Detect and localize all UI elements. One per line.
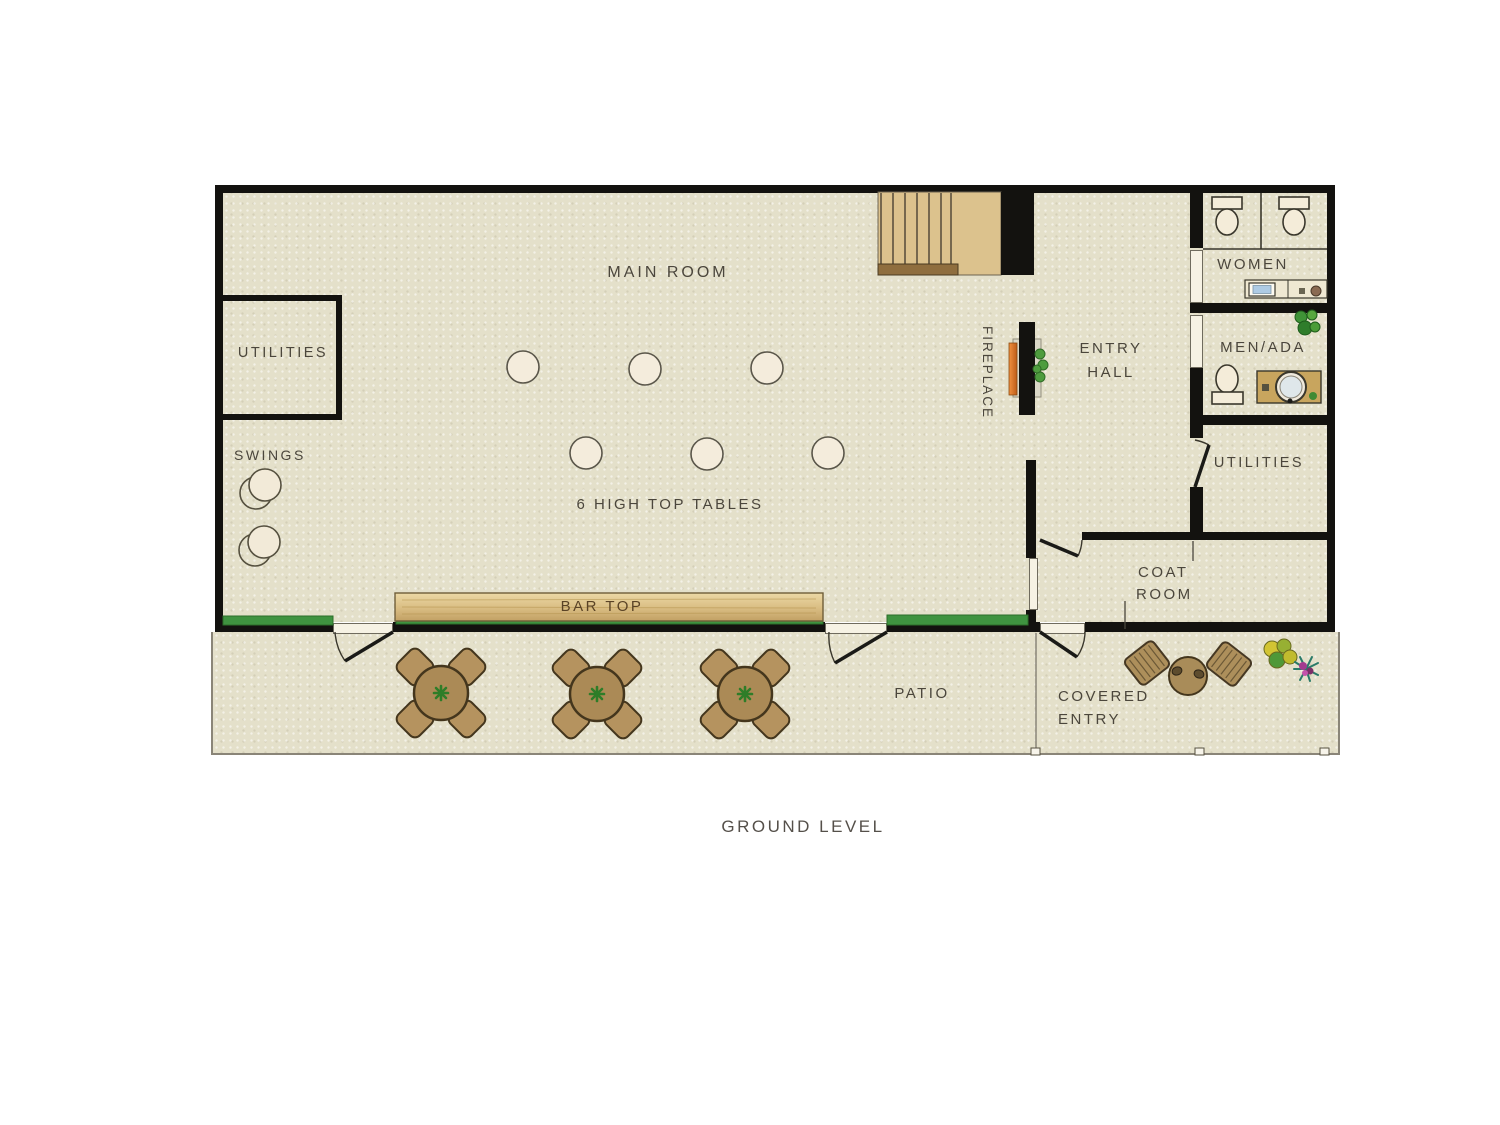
bar-top-label: BAR TOP bbox=[552, 598, 652, 615]
rattan-chair bbox=[1205, 640, 1253, 687]
coatroom-leader-lines bbox=[1125, 541, 1193, 629]
door-arc bbox=[335, 632, 345, 661]
door-leaf bbox=[1040, 632, 1077, 657]
column-tick bbox=[1031, 748, 1040, 755]
entry-hall-label-line1: ENTRY bbox=[1061, 340, 1161, 357]
drain bbox=[1288, 399, 1293, 404]
sink-basin bbox=[1253, 286, 1271, 294]
column-tick bbox=[1320, 748, 1329, 755]
soap-dispenser bbox=[1262, 384, 1269, 391]
round-sink-basin bbox=[1280, 376, 1302, 398]
high-top-tables bbox=[507, 351, 844, 470]
accessory bbox=[1311, 286, 1321, 296]
flower-plant bbox=[1294, 657, 1318, 681]
high-top-table bbox=[812, 437, 844, 469]
patio-table-set bbox=[550, 647, 644, 741]
patio-table-set bbox=[394, 646, 488, 740]
covered-entry-set bbox=[1123, 639, 1318, 695]
toilet-bowl bbox=[1283, 209, 1305, 235]
high-top-note-label: 6 HIGH TOP TABLES bbox=[570, 496, 770, 513]
grass-strip bbox=[887, 615, 1028, 625]
plan-title: GROUND LEVEL bbox=[703, 817, 903, 837]
toilet-tank bbox=[1212, 197, 1242, 209]
toilet-tank bbox=[1279, 197, 1309, 209]
coat-room-label-line1: COAT bbox=[1138, 564, 1189, 581]
main-room-label: MAIN ROOM bbox=[588, 264, 748, 282]
patio-label: PATIO bbox=[872, 685, 972, 702]
coat-room-label-line2: ROOM bbox=[1136, 586, 1193, 603]
high-top-table bbox=[507, 351, 539, 383]
door-arc bbox=[829, 632, 835, 663]
toilet-bowl bbox=[1216, 209, 1238, 235]
door-leaf bbox=[1040, 540, 1078, 556]
fireplace-firebox bbox=[1009, 343, 1017, 395]
men-ada-label: MEN/ADA bbox=[1204, 339, 1322, 356]
toilet-bowl bbox=[1216, 365, 1238, 393]
rattan-chair bbox=[1123, 639, 1171, 686]
swings-label: SWINGS bbox=[234, 447, 306, 463]
fireplace-label: FIREPLACE bbox=[980, 326, 995, 419]
patio-tables bbox=[394, 646, 792, 741]
plan-symbols-layer bbox=[0, 0, 1500, 1125]
swings bbox=[239, 469, 281, 566]
patio-table-set bbox=[698, 647, 792, 741]
utilities-right-label: UTILITIES bbox=[1200, 455, 1318, 471]
column-tick bbox=[1195, 748, 1204, 755]
high-top-table bbox=[751, 352, 783, 384]
fireplace bbox=[1009, 322, 1048, 415]
door-arc bbox=[1195, 440, 1209, 445]
soap-dispenser bbox=[1299, 288, 1305, 294]
swing-seat bbox=[249, 469, 281, 501]
green-accessory bbox=[1309, 392, 1317, 400]
entry-hall-label-line2: HALL bbox=[1061, 364, 1161, 381]
toilet-tank bbox=[1212, 392, 1243, 404]
floor-plan-canvas: MAIN ROOM UTILITIES SWINGS 6 HIGH TOP TA… bbox=[0, 0, 1500, 1125]
high-top-table bbox=[691, 438, 723, 470]
women-restroom-fixtures bbox=[1203, 193, 1327, 298]
high-top-table bbox=[629, 353, 661, 385]
men-restroom-fixtures bbox=[1212, 310, 1321, 404]
covered-entry-label-line2: ENTRY bbox=[1058, 711, 1121, 728]
men-plant bbox=[1295, 310, 1320, 335]
utilities-left-label: UTILITIES bbox=[224, 345, 342, 361]
stair-side-wall bbox=[1001, 192, 1034, 275]
stairs bbox=[878, 192, 1034, 275]
fireplace-plant bbox=[1033, 349, 1048, 382]
grass-strip bbox=[223, 616, 333, 625]
covered-entry-label-line1: COVERED bbox=[1058, 688, 1150, 705]
bush-plant bbox=[1264, 639, 1297, 668]
women-label: WOMEN bbox=[1203, 256, 1303, 273]
door-leaf bbox=[835, 632, 887, 663]
doors bbox=[335, 440, 1209, 663]
door-arc bbox=[1077, 632, 1085, 657]
stair-landing bbox=[878, 264, 958, 275]
high-top-table bbox=[570, 437, 602, 469]
door-leaf bbox=[345, 632, 393, 661]
swing-seat bbox=[248, 526, 280, 558]
door-arc bbox=[1078, 540, 1082, 556]
